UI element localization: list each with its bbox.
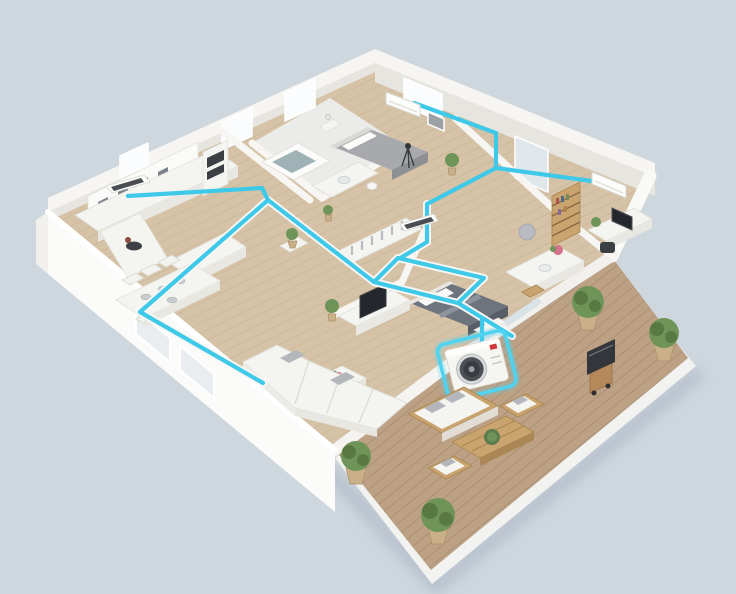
hall-plant [286,228,298,240]
toilet [367,183,377,190]
vanity-sink [539,265,551,272]
table-tray-inner [487,432,497,442]
office-plant [591,217,601,227]
hall-plant-pot [288,241,297,248]
outdoor-unit [436,329,518,401]
hall-plant-2-pot [325,215,332,221]
hall-plant-2 [323,205,333,215]
office-chair [600,242,615,253]
living-plant-pot [328,314,336,321]
cooking-pot [125,237,131,243]
bedroom1-plant-pot [448,168,456,175]
floorplan-scene [0,0,736,594]
sw-wall-west-cap [36,212,48,274]
living-plant [325,299,339,313]
bath-sink [338,177,350,184]
grill-wheel-2 [606,384,611,389]
pouf [519,224,535,240]
bedroom1-plant [445,153,459,167]
vanity-flower-leaves [550,246,556,252]
table-lamp [326,115,331,120]
grill-wheel-1 [592,391,597,396]
